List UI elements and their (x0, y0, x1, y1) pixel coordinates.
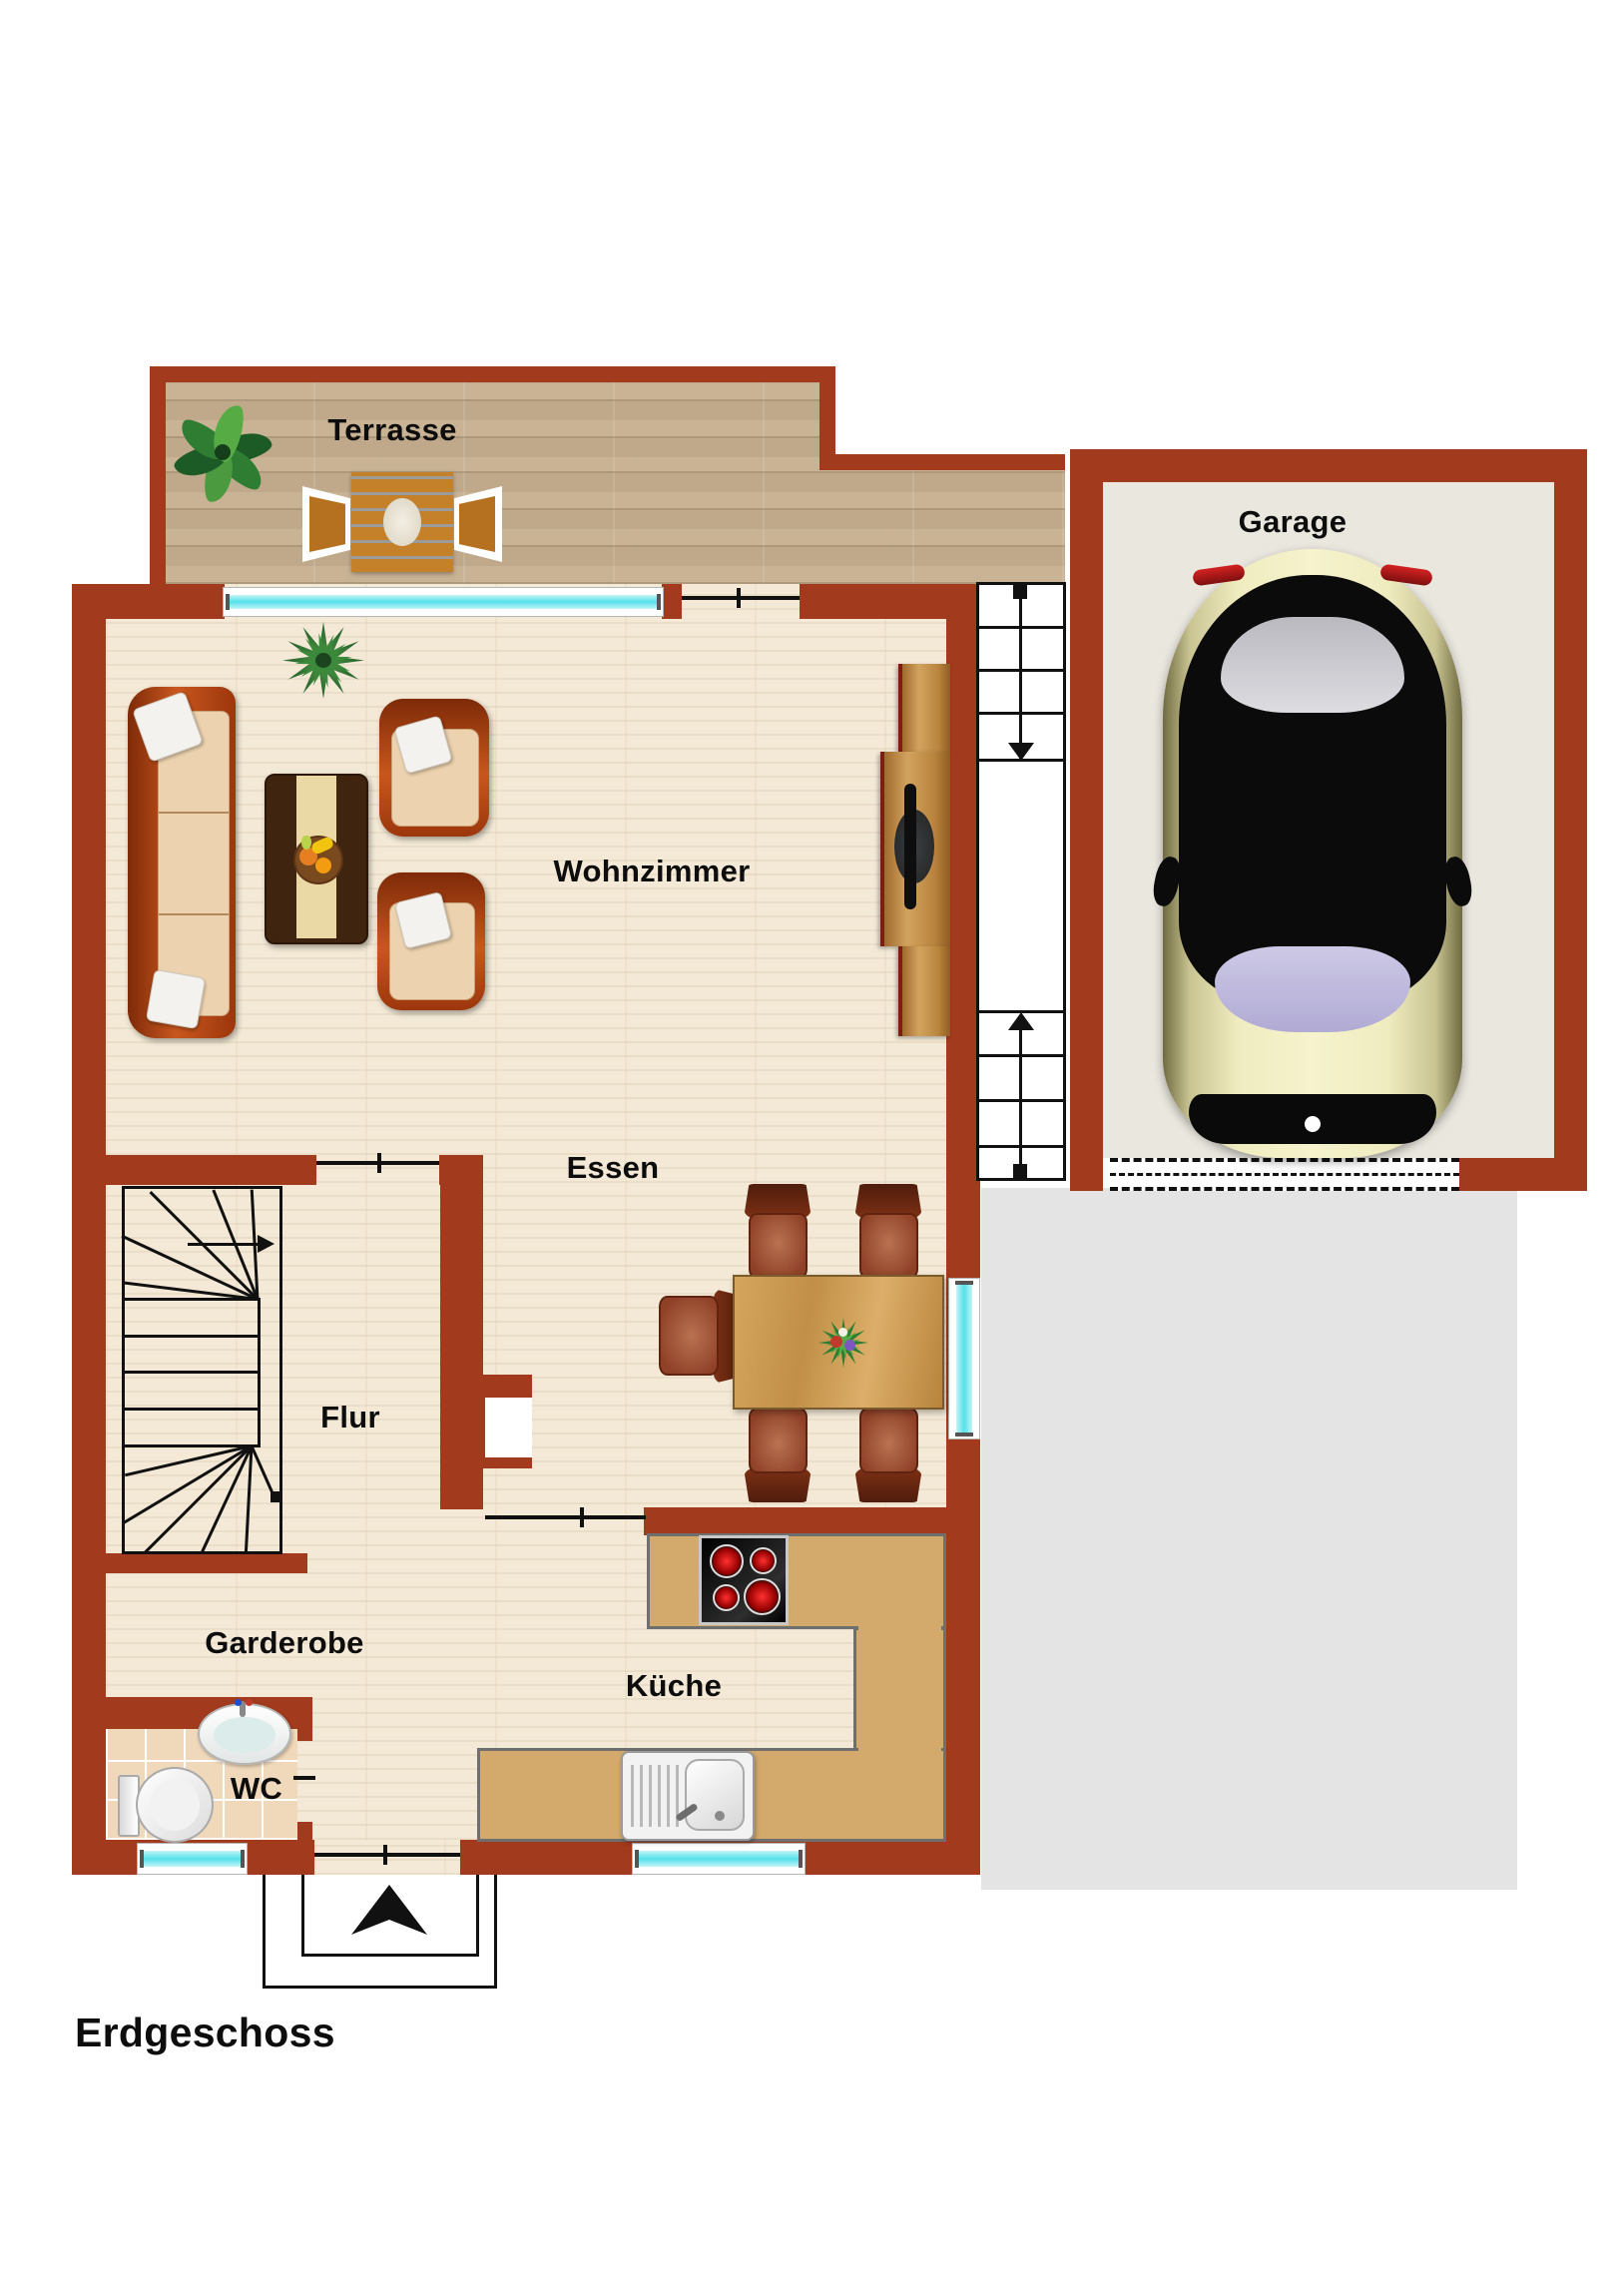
door-tick-entry (383, 1845, 387, 1865)
door-tick-hall (377, 1153, 381, 1173)
exterior-stairs-icon (976, 582, 1066, 1181)
armchair-icon-2 (377, 872, 485, 1010)
window-icon-dining (948, 1278, 980, 1439)
room-label-garderobe: Garderobe (195, 1625, 374, 1661)
wall-wc-right-a (297, 1697, 312, 1741)
kitchen-counter-top (647, 1533, 946, 1629)
terrace-chair-icon-left (302, 486, 350, 562)
armchair-icon-1 (379, 699, 489, 837)
house-wall-right (946, 584, 980, 1875)
garage-wall-bottom-stub (1459, 1158, 1587, 1191)
terrace-table-icon (351, 472, 453, 572)
tv-sideboard-icon (880, 664, 946, 1038)
door-tick-wc (293, 1776, 315, 1780)
plant-icon-terrace (185, 404, 276, 502)
wall-livingroom-hall-2 (439, 1155, 483, 1185)
house-wall-top-stub (662, 584, 682, 619)
room-label-wc: WC (217, 1771, 296, 1807)
counter-seam-patch-2 (858, 1743, 941, 1755)
flower-centerpiece-icon (818, 1318, 868, 1368)
kitchen-sink-icon (621, 1751, 755, 1841)
dining-chair-icon-top1 (744, 1184, 811, 1279)
window-icon-wc (137, 1843, 248, 1875)
sofa-icon (128, 687, 236, 1038)
shaft-opening (485, 1398, 532, 1457)
wall-wc-right-b (297, 1822, 312, 1842)
dining-chair-icon-top2 (854, 1184, 922, 1279)
terrace-wall-step-h (819, 454, 1065, 470)
garage-wall-right (1554, 449, 1587, 1191)
door-tick-terrace (737, 588, 741, 608)
door-threshold-icon-entry (314, 1853, 460, 1857)
wall-under-stairs (106, 1553, 307, 1573)
terrace-wall-top (150, 366, 835, 382)
wall-kitchen-top (644, 1507, 946, 1535)
stove-icon (699, 1535, 789, 1625)
wc-sink-icon (198, 1703, 291, 1765)
plant-icon-living (282, 622, 364, 699)
car-icon (1163, 549, 1462, 1158)
stairs-icon (122, 1186, 282, 1554)
dining-chair-icon-bottom1 (744, 1408, 811, 1502)
garage-door-icon (1110, 1158, 1459, 1191)
window-icon-kitchen (632, 1843, 806, 1875)
counter-seam-patch-1 (858, 1623, 941, 1635)
house-wall-left (72, 584, 106, 1875)
room-label-wohnzimmer: Wohnzimmer (522, 854, 782, 889)
door-tick-kitchen (580, 1507, 584, 1527)
driveway (981, 1188, 1517, 1890)
room-label-terrasse: Terrasse (289, 412, 495, 448)
house-wall-top-2 (800, 584, 946, 619)
door-threshold-icon-kitchen (485, 1515, 646, 1519)
entry-door-gap (314, 1840, 460, 1875)
dining-chair-icon-left (660, 1289, 744, 1384)
floor-title: Erdgeschoss (75, 2009, 534, 2056)
dining-chair-icon-bottom2 (854, 1408, 922, 1502)
window-icon-terrace (223, 587, 664, 617)
terrace-wall-left (150, 366, 166, 600)
fruit-bowl-icon (293, 836, 343, 884)
wc-toilet-icon (118, 1767, 216, 1845)
coffee-table-icon (265, 774, 368, 944)
kitchen-counter-right (853, 1627, 946, 1752)
room-label-essen: Essen (543, 1150, 683, 1186)
wall-livingroom-hall-1 (106, 1155, 316, 1185)
room-label-flur: Flur (290, 1400, 410, 1435)
floor-plan-erdgeschoss: Terrasse Garage Wohnzimmer Essen Flur Ga… (0, 0, 1623, 2296)
garage-wall-left (1070, 449, 1103, 1191)
terrace-floor-lower (164, 470, 1065, 584)
room-label-garage: Garage (1193, 504, 1392, 540)
garage-wall-top (1070, 449, 1587, 482)
terrace-chair-icon-right (454, 486, 502, 562)
door-threshold-icon-terrace (682, 596, 800, 600)
house-wall-top-1 (72, 584, 225, 619)
room-label-kueche: Küche (594, 1668, 754, 1704)
